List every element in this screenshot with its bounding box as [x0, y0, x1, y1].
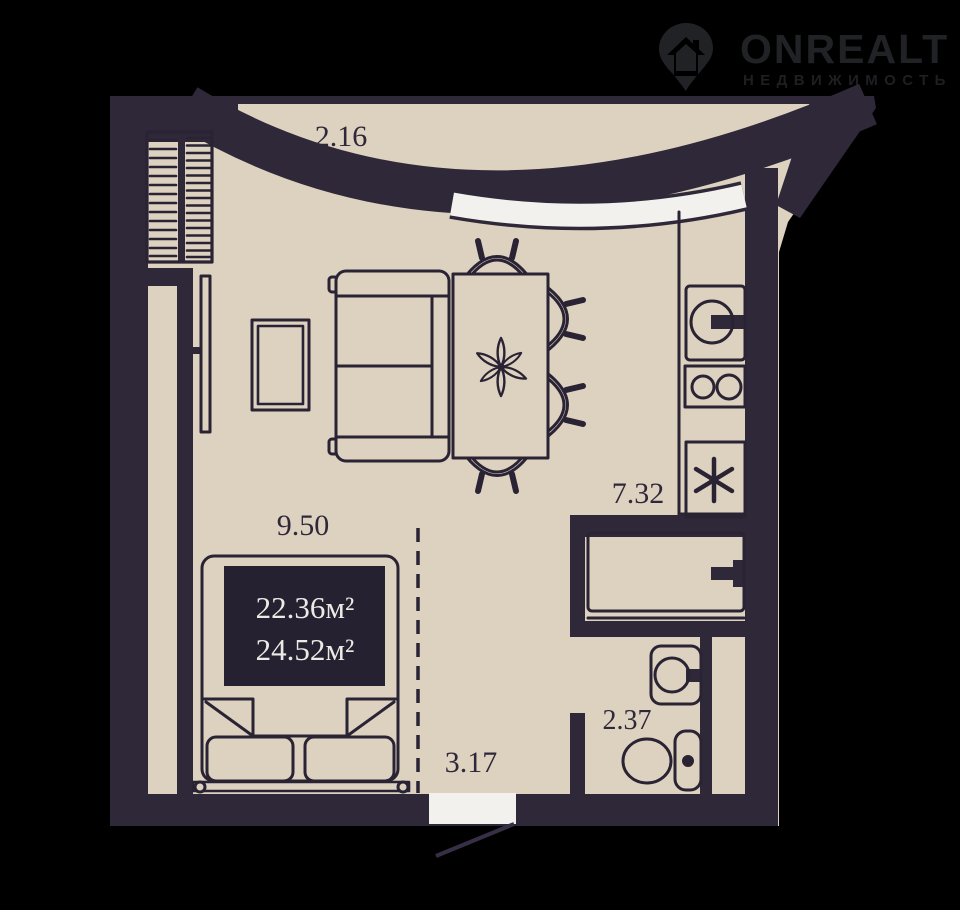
closet-door-leaf — [201, 276, 210, 432]
right-wall — [745, 168, 778, 826]
bath-bottom-wall — [570, 621, 750, 637]
kitchen-faucet — [711, 315, 747, 329]
closet-top-wall — [148, 268, 193, 286]
floor-plan: 22.36м² 24.52м² 2.16 9.50 7.32 3.17 2.37… — [0, 0, 960, 910]
radiator-divider — [178, 132, 185, 262]
logo: ONREALT НЕДВИЖИМОСТЬ — [659, 23, 952, 91]
wc-left-wall-stub — [570, 713, 585, 794]
living-dimension-label: 9.50 — [277, 509, 330, 542]
balcony-dimension-label: 2.16 — [315, 120, 368, 153]
logo-tagline: НЕДВИЖИМОСТЬ — [743, 72, 952, 89]
living-area-value: 22.36м² — [256, 590, 355, 625]
bathroom-dimension-label: 2.37 — [603, 705, 652, 736]
left-wall — [110, 96, 148, 826]
sofa — [329, 271, 449, 461]
floor-plan-page: 22.36м² 24.52м² 2.16 9.50 7.32 3.17 2.37… — [0, 0, 960, 910]
total-area-value: 24.52м² — [256, 632, 355, 667]
entry-door-swing-line — [436, 824, 514, 856]
logo-brand-text: ONREALT — [740, 26, 949, 72]
bath-left-wall — [570, 515, 585, 630]
hallway-dimension-label: 3.17 — [445, 746, 498, 779]
kitchen-dimension-label: 7.32 — [612, 477, 665, 510]
entry-door-opening — [429, 793, 516, 824]
closet-partition-wall — [177, 286, 193, 794]
area-info-box — [224, 566, 385, 686]
logo-pin-icon — [659, 23, 713, 91]
